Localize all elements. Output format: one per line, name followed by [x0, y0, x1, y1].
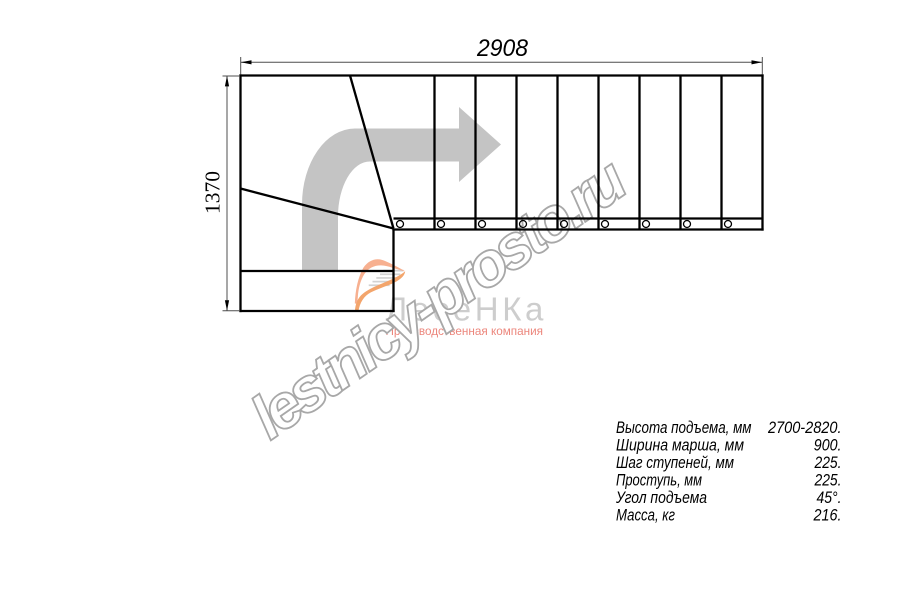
svg-text:2908: 2908 — [476, 35, 528, 62]
svg-text:225.: 225. — [814, 454, 842, 472]
svg-text:2700-2820.: 2700-2820. — [767, 419, 841, 437]
svg-text:45°.: 45°. — [817, 489, 842, 507]
svg-text:1370: 1370 — [201, 171, 225, 214]
svg-text:Масса, кг: Масса, кг — [616, 507, 675, 525]
svg-text:216.: 216. — [813, 507, 842, 525]
svg-text:Высота подъема, мм: Высота подъема, мм — [616, 419, 752, 437]
svg-text:lestnicy-prosto.ru: lestnicy-prosto.ru — [239, 145, 640, 453]
svg-text:900.: 900. — [814, 437, 842, 455]
svg-text:225.: 225. — [814, 472, 842, 490]
svg-text:Ширина марша, мм: Ширина марша, мм — [616, 437, 744, 455]
svg-text:Проступь, мм: Проступь, мм — [616, 472, 702, 490]
svg-text:Шаг ступеней, мм: Шаг ступеней, мм — [616, 454, 734, 472]
svg-text:Угол подъема: Угол подъема — [615, 489, 707, 507]
